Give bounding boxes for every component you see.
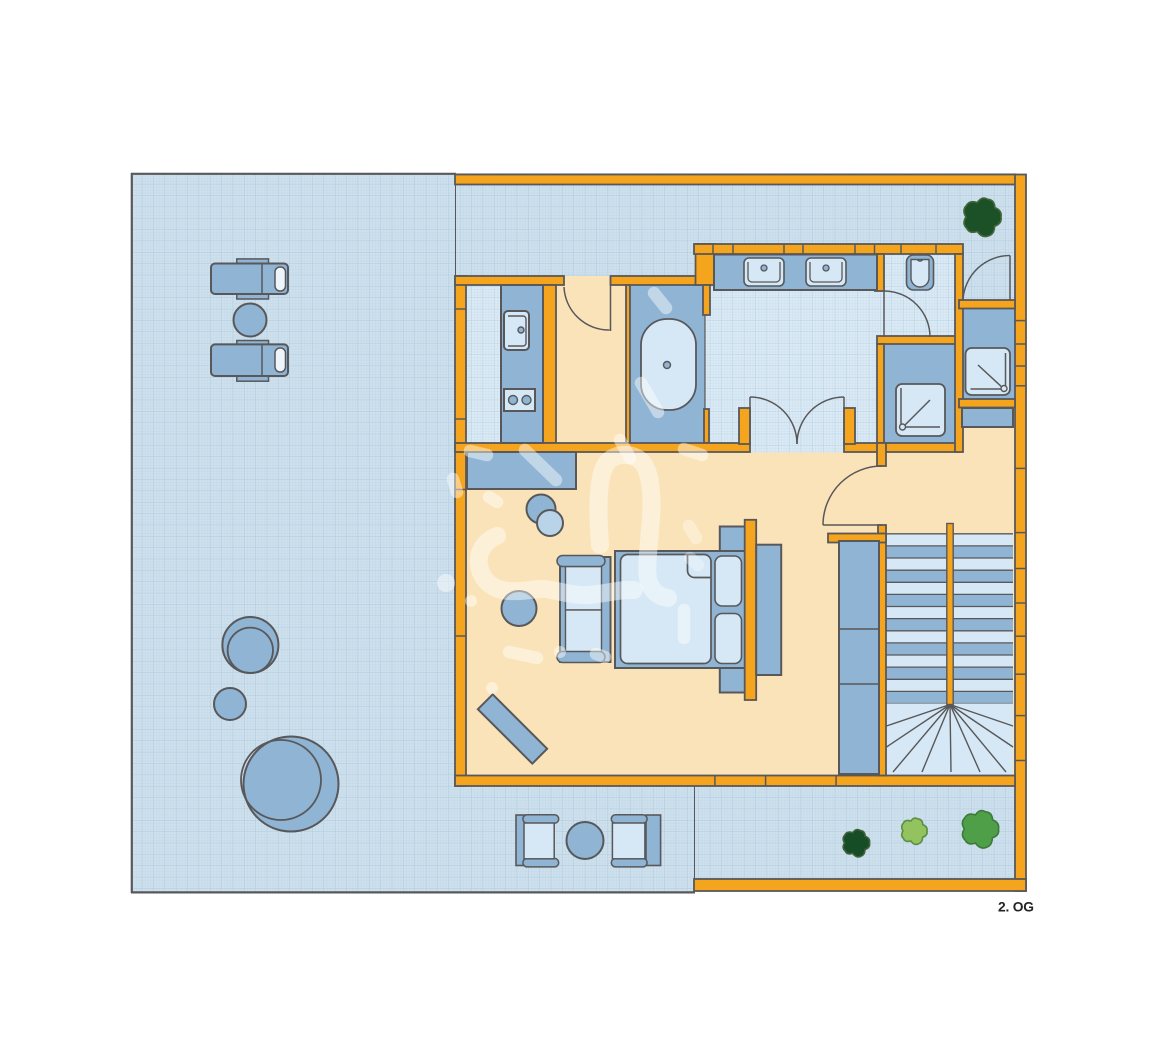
- svg-text:2. OG: 2. OG: [998, 900, 1034, 915]
